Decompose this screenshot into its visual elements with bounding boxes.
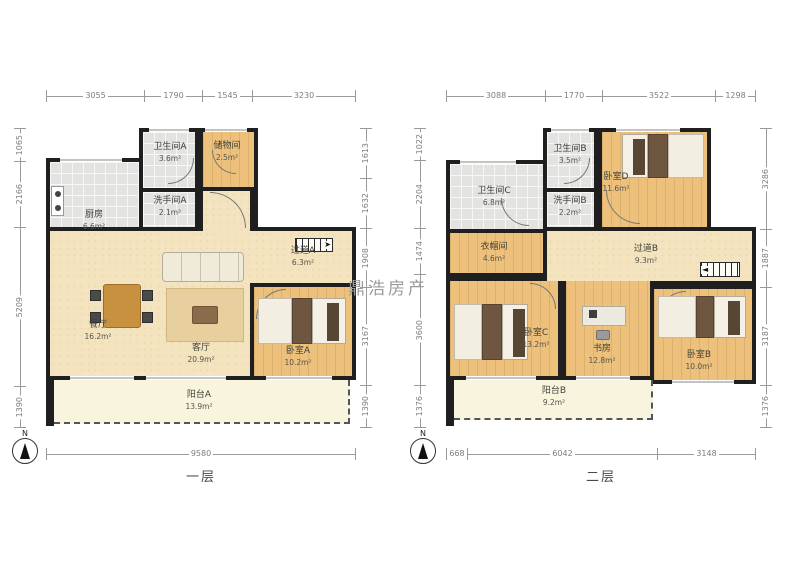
floor2-plan: ◄ 卫生间C6.8m² 卫生间B3.5m² 洗手间B2.2m² 卧室D11.6m… [446,128,756,428]
floor1-title: 一层 [46,466,356,485]
floor1-plan: ➤ 厨房6.6m² 卫生间A3.6m² 储物间2.5m² 洗手间A2.1m² 过… [46,128,356,428]
dim: 2166 [14,161,26,227]
floor1-left-ruler: 1065 2166 5209 1390 [14,128,26,428]
stairs-icon: ➤ [295,238,333,252]
chair-icon [142,290,153,301]
balconyA-floor [54,380,350,424]
floor1-bottom-ruler: 9580 [46,448,356,460]
floor2-title: 二层 [446,466,756,485]
dim: 3167 [360,287,372,385]
dim: 6042 [467,448,657,460]
bedC-blanket-icon [482,304,502,360]
north-compass-icon: N [10,430,40,464]
dim: 1545 [202,90,252,102]
north-label: N [10,430,40,438]
bedC-icon [454,304,482,360]
dim: 3230 [252,90,356,102]
dim: 1065 [14,128,26,161]
wardrobeA-icon [312,298,346,344]
window [460,160,516,164]
dim: 1790 [144,90,202,102]
dim: 3286 [760,128,772,229]
north-arrow-icon [418,443,428,459]
coffee-table-icon [192,306,218,324]
bedA-blanket-icon [292,298,312,344]
wall [46,380,54,426]
dim: 3187 [760,287,772,385]
bedB-icon [658,296,696,338]
dim: 1022 [414,128,426,160]
window [551,128,589,132]
dim: 3148 [657,448,756,460]
window [60,158,122,162]
dim: 5209 [14,227,26,386]
chair-icon [90,290,101,301]
chair-icon [142,312,153,323]
sofa-icon [162,252,244,282]
desk-chair-icon [596,330,610,340]
floor2-right-ruler: 3286 1887 3187 1376 [760,128,772,428]
floorplan-page: { "watermark": "鼎浩房产", "plans": [ { "flo… [0,0,800,569]
bedD-icon [668,134,704,178]
window [672,380,734,384]
north-arrow-icon [20,443,30,459]
window [616,128,680,132]
balconyB-floor [454,380,653,420]
window [205,128,247,132]
dim: 2204 [414,160,426,228]
north-compass-icon: N [408,430,438,464]
window [466,376,536,380]
wall [446,380,454,426]
dim: 1613 [360,128,372,178]
washroomB-floor [547,192,594,227]
dim: 1770 [545,90,602,102]
dim: 668 [446,448,467,460]
wardrobeC-icon [502,304,528,360]
window [70,376,134,380]
floor2-bottom-ruler: 668 6042 3148 [446,448,756,460]
washroomA-floor [143,192,195,227]
window [266,376,332,380]
dim: 3522 [602,90,715,102]
dim: 1376 [414,385,426,428]
dim: 1632 [360,178,372,228]
desk-icon [582,306,626,326]
agency-watermark: 鼎浩房产 [348,274,428,299]
floor2-top-ruler: 3088 1770 3522 1298 [446,90,756,102]
bathroomC-floor [450,164,543,229]
window [576,376,630,380]
stairs-icon: ◄ [700,262,740,277]
dim: 1298 [715,90,756,102]
dim: 1390 [14,386,26,428]
dim: 1390 [360,385,372,428]
wardrobeD-icon [622,134,648,178]
stove-icon [51,186,64,216]
dim: 1474 [414,228,426,274]
dim: 3088 [446,90,545,102]
north-label: N [408,430,438,438]
dim: 1376 [760,385,772,428]
window [149,128,189,132]
dining-table-icon [103,284,141,328]
bedA-icon [258,298,292,344]
bedB-blanket-icon [696,296,714,338]
dim: 1887 [760,229,772,287]
window [146,376,226,380]
dim: 3055 [46,90,144,102]
wardrobeB-icon [714,296,746,338]
bedD-blanket-icon [648,134,668,178]
chair-icon [90,312,101,323]
closet-floor [450,233,543,273]
dim: 9580 [46,448,356,460]
study-floor [566,281,650,376]
floor1-top-ruler: 3055 1790 1545 3230 [46,90,356,102]
